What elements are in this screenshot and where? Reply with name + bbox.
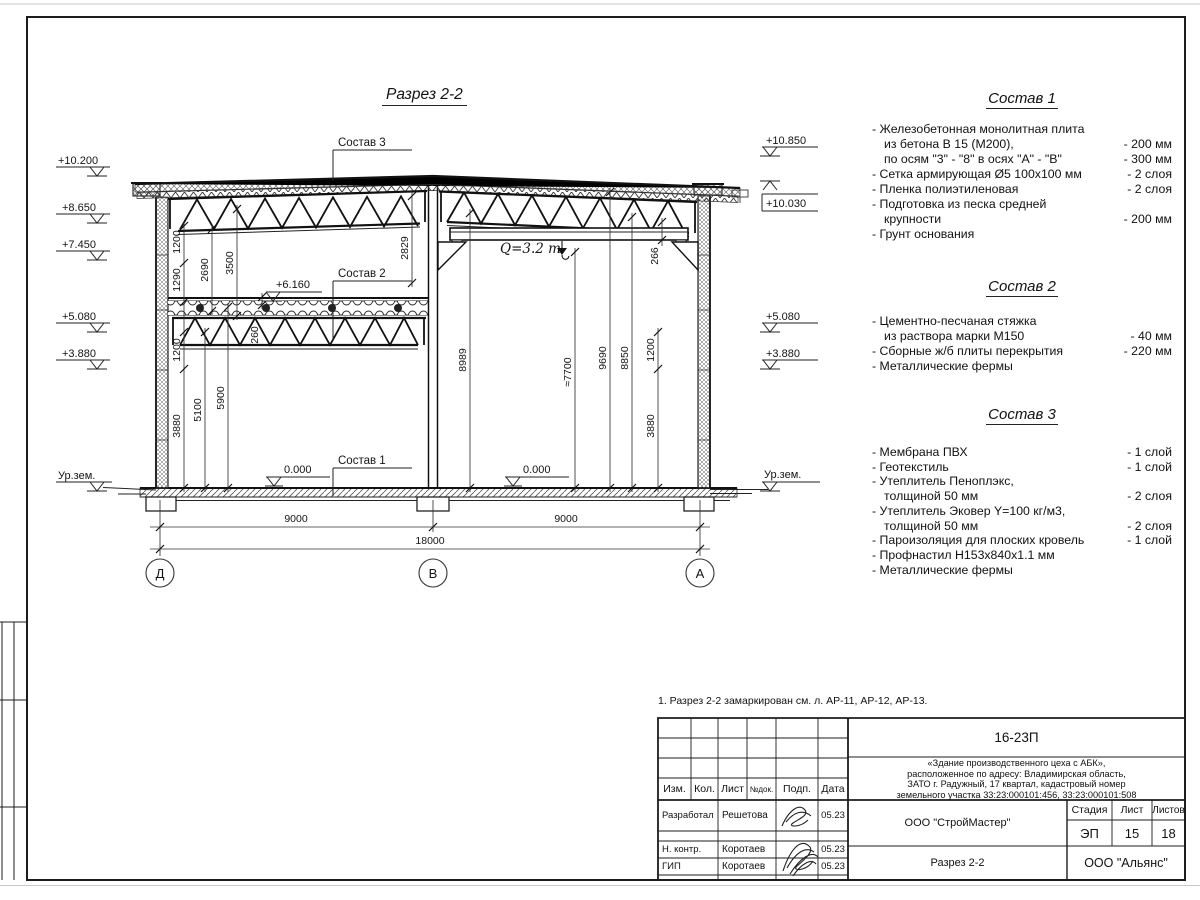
tb-name-developer: Решетова — [718, 800, 780, 831]
tb-date-ncontrol: 05.23 — [818, 841, 848, 858]
tb-contractor: ООО "СтройМастер" — [848, 800, 1067, 846]
spec-row: - Металлические фермы — [872, 563, 1172, 578]
ground-level-left: Ур.зем. — [58, 470, 95, 482]
spec3-title: Состав 3 — [872, 406, 1172, 424]
tb-role-developer: Разработал — [658, 800, 722, 831]
drawing-sheet: Д В А +10.200 +8.650 +7.450 +5.080 +3.88… — [0, 0, 1200, 900]
tb-role-gip: ГИП — [658, 858, 722, 875]
spec-block-3: Состав 3 - Мембрана ПВХ- 1 слой - Геотек… — [872, 406, 1172, 577]
dim-8850: 8850 — [619, 346, 631, 370]
spec-row: - Сборные ж/б плиты перекрытия- 220 мм — [872, 344, 1172, 359]
dim-9690: 9690 — [597, 346, 609, 370]
dim-1290: 1290 — [171, 268, 183, 292]
dim-5100: 5100 — [192, 398, 204, 422]
roof-truss-left — [168, 191, 427, 235]
dim-9000a: 9000 — [284, 513, 308, 525]
dim-7700: ≈7700 — [562, 357, 574, 386]
spec-row: по осям "3" - "8" в осях "А" - "В"- 300 … — [872, 152, 1172, 167]
tb-date-developer: 05.23 — [818, 800, 848, 831]
tb-object-line: земельного участка 33:23:000101:456, 33:… — [850, 790, 1183, 801]
tb-listov-value: 18 — [1152, 820, 1185, 846]
tb-listov-label: Листов — [1152, 800, 1185, 820]
vertical-dimensions: 1200 1290 1200 3880 5100 5900 2690 3500 … — [171, 230, 661, 438]
spec-row: - Профнастил Н153х840х1.1 мм — [872, 548, 1172, 563]
elev-left-10200: +10.200 — [58, 155, 98, 167]
spec-row: толщиной 50 мм- 2 слоя — [872, 519, 1172, 534]
elev-left-8650: +8.650 — [62, 202, 96, 214]
spec-row: - Мембрана ПВХ- 1 слой — [872, 445, 1172, 460]
dim-5900: 5900 — [215, 386, 227, 410]
tb-list-label: Лист — [1112, 800, 1152, 820]
tb-stage-value: ЭП — [1067, 820, 1112, 846]
spec-row: - Утеплитель Пеноплэкс, — [872, 474, 1172, 489]
dim-266: 266 — [649, 247, 661, 265]
tb-doc-number: 16-23П — [848, 718, 1185, 757]
tb-col-ndok: №док. — [747, 778, 776, 800]
dim-260: 260 — [249, 326, 261, 344]
wall-right — [692, 184, 748, 488]
spec1-title: Состав 1 — [872, 90, 1172, 108]
elev-left-3880: +3.880 — [62, 348, 96, 360]
spec-block-1: Состав 1 - Железобетонная монолитная пли… — [872, 90, 1172, 242]
spec-row: - Сетка армирующая Ø5 100х100 мм- 2 слоя — [872, 167, 1172, 182]
axis-label-a: А — [696, 566, 705, 581]
sheet-note: 1. Разрез 2-2 замаркирован см. л. АР-11,… — [658, 695, 927, 707]
axis-label-d: Д — [156, 566, 165, 581]
crane-console-left — [438, 242, 466, 270]
dim-9000b: 9000 — [554, 513, 578, 525]
tb-date-gip: 05.23 — [818, 858, 848, 875]
drawing-view-title: Разрез 2-2 — [382, 86, 467, 106]
ref-sostav2: Состав 2 — [338, 268, 386, 280]
tb-stage-label: Стадия — [1067, 800, 1112, 820]
crane-console-right — [672, 242, 698, 270]
tb-name-gip: Коротаев — [718, 858, 780, 875]
dim-1200r: 1200 — [645, 338, 657, 362]
foundations — [146, 497, 714, 511]
tb-object-line: расположенное по адресу: Владимирская об… — [850, 769, 1183, 780]
signature-icon — [782, 807, 818, 876]
dim-8989: 8989 — [457, 348, 469, 372]
spec-row: - Пароизоляция для плоских кровель- 1 сл… — [872, 533, 1172, 548]
spec-row: - Подготовка из песка средней — [872, 197, 1172, 212]
tb-col-kol: Кол. — [691, 778, 718, 800]
elev-right-5080: +5.080 — [766, 311, 800, 323]
crane-capacity-label: Q=3.2 т — [500, 241, 561, 257]
dim-3880l: 3880 — [171, 414, 183, 438]
spec-row: толщиной 50 мм- 2 слоя — [872, 489, 1172, 504]
floor-truss-left — [172, 318, 426, 349]
tb-object-line: «Здание производственного цеха с АБК», — [850, 758, 1183, 769]
tb-sheet-title: Разрез 2-2 — [848, 846, 1067, 880]
spec-row: - Железобетонная монолитная плита — [872, 122, 1172, 137]
spec-row: - Цементно-песчаная стяжка — [872, 314, 1172, 329]
spec-row: - Утеплитель Эковер Y=100 кг/м3, — [872, 504, 1172, 519]
spec-row: - Грунт основания — [872, 227, 1172, 242]
tb-customer: ООО "Альянс" — [1067, 846, 1185, 880]
dim-3500: 3500 — [224, 251, 236, 275]
bottom-dimensions: 9000 9000 18000 — [284, 513, 578, 547]
tb-col-data: Дата — [818, 778, 848, 800]
elev-right-10850: +10.850 — [766, 135, 806, 147]
dim-3880r: 3880 — [645, 414, 657, 438]
spec-row: - Металлические фермы — [872, 359, 1172, 374]
spec-row: крупности- 200 мм — [872, 212, 1172, 227]
dim-1200b: 1200 — [171, 338, 183, 362]
spec-row: из раствора марки М150- 40 мм — [872, 329, 1172, 344]
tb-col-podp: Подп. — [776, 778, 818, 800]
frame-left-column — [0, 622, 27, 880]
spec-block-2: Состав 2 - Цементно-песчаная стяжка из р… — [872, 278, 1172, 374]
tb-object-description: «Здание производственного цеха с АБК», р… — [850, 758, 1183, 800]
dim-2690: 2690 — [199, 258, 211, 282]
spec-row: из бетона В 15 (М200),- 200 мм — [872, 137, 1172, 152]
mezzanine-floor — [168, 298, 428, 315]
tb-col-izm: Изм. — [658, 778, 691, 800]
tb-role-ncontrol: Н. контр. — [658, 841, 722, 858]
elev-right-10030: +10.030 — [766, 198, 806, 210]
elev-right-3880: +3.880 — [766, 348, 800, 360]
tb-object-line: ЗАТО г. Радужный, 17 квартал, кадастровы… — [850, 779, 1183, 790]
level-zero-left: 0.000 — [284, 464, 312, 476]
elev-left-7450: +7.450 — [62, 239, 96, 251]
axis-label-v: В — [429, 566, 438, 581]
wall-middle — [429, 184, 438, 488]
spec-row: - Геотекстиль- 1 слой — [872, 460, 1172, 475]
dim-18000: 18000 — [415, 535, 444, 547]
elev-left-5080: +5.080 — [62, 311, 96, 323]
tb-list-value: 15 — [1112, 820, 1152, 846]
ref-sostav1: Состав 1 — [338, 455, 386, 467]
wall-left — [131, 183, 168, 488]
axis-markers: Д В А — [146, 559, 714, 587]
spec2-title: Состав 2 — [872, 278, 1172, 296]
ref-sostav3: Состав 3 — [338, 137, 386, 149]
dim-1200a: 1200 — [171, 230, 183, 254]
dim-2829: 2829 — [399, 236, 411, 260]
tb-name-ncontrol: Коротаев — [718, 841, 780, 858]
level-zero-right: 0.000 — [523, 464, 551, 476]
spec-row: - Пленка полиэтиленовая- 2 слоя — [872, 182, 1172, 197]
ground-level-right: Ур.зем. — [764, 469, 801, 481]
tb-col-list: Лист — [718, 778, 747, 800]
level-6160: +6.160 — [276, 279, 310, 291]
